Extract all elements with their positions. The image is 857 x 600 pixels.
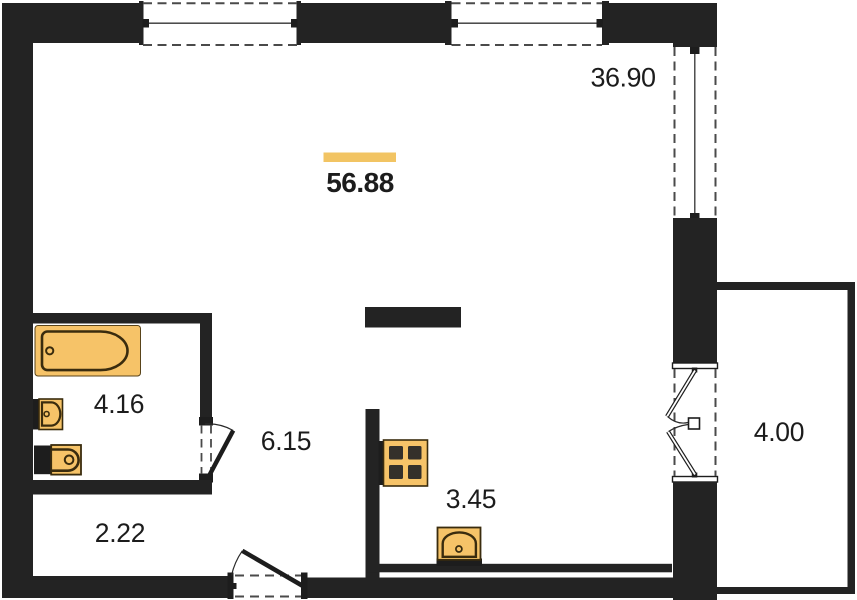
svg-text:3.45: 3.45 [446,484,496,514]
svg-text:2.22: 2.22 [95,518,145,548]
svg-text:56.88: 56.88 [326,167,394,198]
svg-text:4.16: 4.16 [94,389,144,419]
svg-text:36.90: 36.90 [590,63,655,93]
svg-text:6.15: 6.15 [261,426,311,456]
svg-text:4.00: 4.00 [754,417,804,447]
